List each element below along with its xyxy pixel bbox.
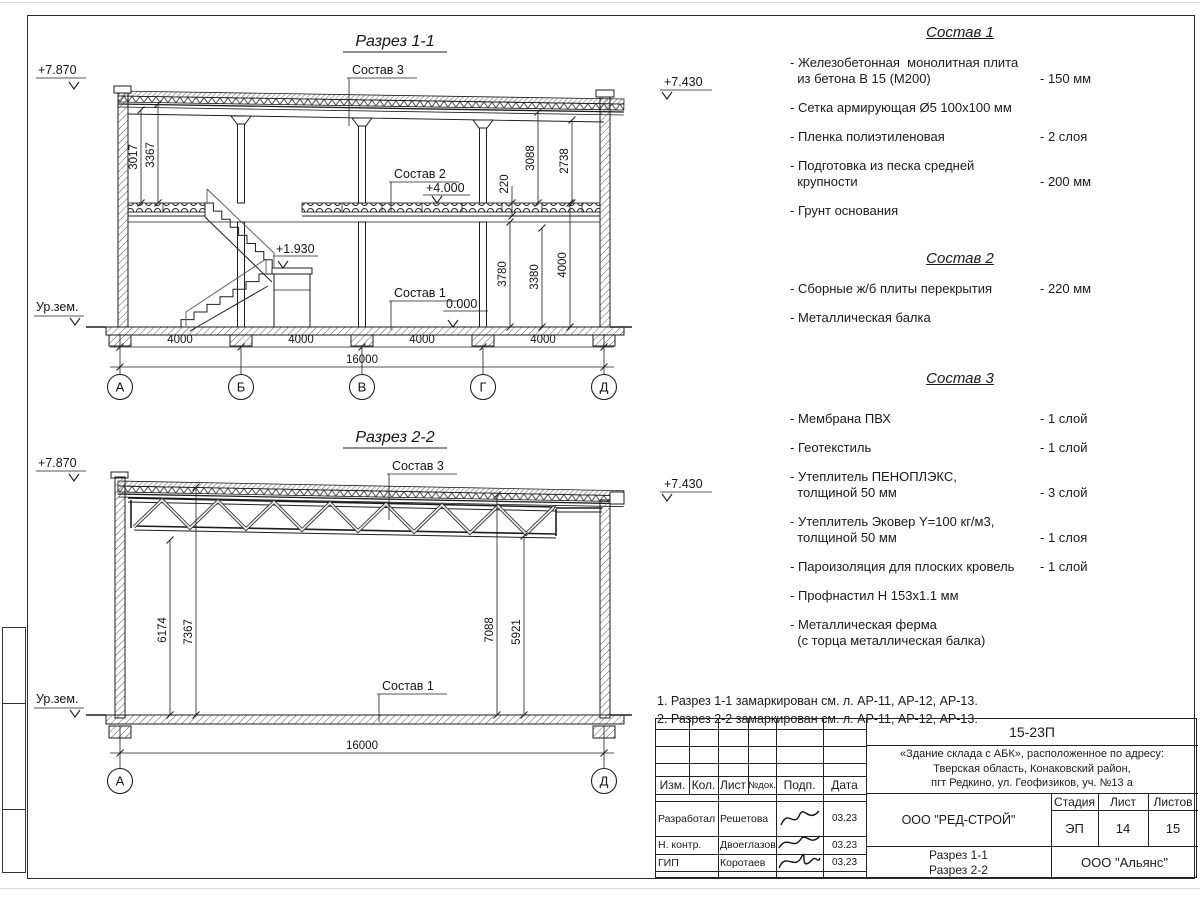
sheets-header: Листов	[1148, 793, 1198, 810]
dim-bay-4: 4000	[530, 334, 556, 346]
drawing-sheet: Разрез 1-1 +7.870 +7.430 Ур.зем. Состав …	[0, 0, 1200, 900]
level-landing: +1.930	[276, 242, 315, 256]
left-wall-2-2	[115, 477, 125, 718]
dim-bay-3: 4000	[409, 334, 435, 346]
dim-7367: 7367	[183, 619, 195, 645]
stage-header: Стадия	[1051, 793, 1098, 810]
role-ncontrol: Н. контр.	[658, 836, 718, 854]
date-gip: 03.23	[823, 854, 866, 871]
section-1-1-title: Разрез 1-1	[355, 33, 434, 50]
sheet-number: 14	[1098, 810, 1148, 846]
list-item: - Сетка армирующая Ø5 100х100 мм	[790, 100, 1190, 116]
list-item: - Утеплитель Эковер Y=100 кг/м3, толщино…	[790, 514, 1190, 546]
left-wall-1-1	[118, 93, 128, 327]
page-edge-bottom	[0, 888, 1200, 889]
dim-2738: 2738	[559, 148, 571, 174]
list-item: - Мембрана ПВХ - 1 слой	[790, 411, 1190, 427]
sheet-header: Лист	[1098, 793, 1148, 810]
axis-label-b: Б	[237, 380, 246, 395]
level-left-top: +7.870	[38, 63, 77, 77]
section-2-2-drawing: Разрез 2-2 +7.870 +7.430 Состав 3 Состав…	[28, 425, 718, 797]
composition-1-title: Состав 1	[790, 24, 1130, 41]
axis-label-v: В	[358, 380, 367, 395]
list-item: - Металлическая ферма (с торца металличе…	[790, 617, 1190, 649]
intermediate-slab	[128, 203, 600, 222]
leader-sostav2: Состав 2	[394, 167, 446, 181]
right-wall-2-2	[600, 500, 610, 718]
level-left-top-2: +7.870	[38, 456, 77, 470]
dim-220: 220	[499, 174, 511, 193]
dim-4000v: 4000	[557, 252, 569, 278]
stage-value: ЭП	[1051, 810, 1098, 846]
composition-2-title: Состав 2	[790, 250, 1130, 267]
page-edge-top	[0, 2, 1200, 3]
list-item: - Подготовка из песка средней крупности …	[790, 158, 1190, 190]
list-item: - Пароизоляция для плоских кровель - 1 с…	[790, 559, 1190, 575]
note-1: 1. Разрез 1-1 замаркирован см. л. АР-11,…	[657, 693, 978, 711]
sheets-total: 15	[1148, 810, 1198, 846]
right-wall-1-1	[600, 97, 610, 327]
roof-truss	[128, 498, 602, 538]
dim-5921: 5921	[511, 619, 523, 645]
project-object: «Здание склада с АБК», расположенное по …	[866, 745, 1198, 793]
list-item: - Грунт основания	[790, 203, 1190, 219]
axis-label-a: А	[116, 380, 125, 395]
dim-6174: 6174	[157, 617, 169, 643]
title-block: Изм. Кол. Лист №док. Подп. Дата Разработ…	[655, 718, 1197, 878]
dim-3380: 3380	[529, 264, 541, 290]
list-item: - Профнастил Н 153х1.1 мм	[790, 588, 1190, 604]
col-header-data: Дата	[823, 776, 866, 794]
col-header-list: Лист	[718, 776, 748, 794]
dim-total-1-1: 16000	[346, 354, 378, 366]
col-header-ndok: №док.	[748, 776, 776, 794]
company: ООО "Альянс"	[1051, 846, 1198, 879]
col-header-podp: Подп.	[776, 776, 823, 794]
level-plus4000: +4.000	[426, 181, 465, 195]
composition-3-title: Состав 3	[790, 370, 1130, 387]
role-developer: Разработал	[658, 801, 718, 836]
list-item: - Пленка полиэтиленовая - 2 слоя	[790, 129, 1190, 145]
level-right-top: +7.430	[664, 75, 703, 89]
name-developer: Решетова	[720, 801, 776, 836]
signature-gip	[775, 847, 822, 874]
list-item: - Железобетонная монолитная плита из бет…	[790, 55, 1190, 87]
signature-developer	[778, 805, 822, 833]
role-gip: ГИП	[658, 854, 718, 871]
composition-3: Состав 3 - Мембрана ПВХ - 1 слой - Геоте…	[790, 370, 1190, 649]
ground-slab-2-2	[86, 715, 632, 738]
project-code: 15-23П	[866, 719, 1198, 745]
section-2-2-title: Разрез 2-2	[355, 429, 434, 446]
axis-bubbles-2-2	[108, 769, 617, 794]
margin-stamp	[2, 627, 26, 873]
leader-sostav3-2: Состав 3	[392, 459, 444, 473]
dim-7088: 7088	[484, 617, 496, 643]
dim-total-2-2: 16000	[346, 740, 378, 752]
dim-bay-1: 4000	[167, 334, 193, 346]
date-developer: 03.23	[823, 801, 866, 836]
section-1-1-geometry	[34, 52, 712, 400]
section-1-1-drawing: Разрез 1-1 +7.870 +7.430 Ур.зем. Состав …	[28, 18, 718, 406]
list-item: - Утеплитель ПЕНОПЛЭКС, толщиной 50 мм -…	[790, 469, 1190, 501]
right-parapet-cap	[596, 90, 614, 97]
left-parapet-cap	[114, 86, 131, 93]
dim-3780: 3780	[497, 261, 509, 287]
axis-label-d: Д	[600, 380, 609, 395]
composition-1: Состав 1 - Железобетонная монолитная пли…	[790, 24, 1190, 219]
dim-3088: 3088	[525, 145, 537, 171]
axis-label-d-2: Д	[600, 774, 609, 789]
date-ncontrol: 03.23	[823, 836, 866, 854]
axis-label-a-2: А	[116, 774, 125, 789]
level-right-top-2: +7.430	[664, 477, 703, 491]
roof-1-1	[118, 91, 624, 115]
name-gip: Коротаев	[720, 854, 776, 871]
leader-sostav1-2: Состав 1	[382, 679, 434, 693]
name-ncontrol: Двоеглазов	[720, 836, 776, 854]
sheet-title: Разрез 1-1 Разрез 2-2	[866, 846, 1051, 879]
leader-sostav3: Состав 3	[352, 63, 404, 77]
col-header-izm: Изм.	[656, 776, 689, 794]
design-org: ООО "РЕД-СТРОЙ"	[866, 793, 1051, 846]
dim-3367: 3367	[145, 142, 157, 168]
dim-3017: 3017	[128, 144, 140, 170]
list-item: - Сборные ж/б плиты перекрытия - 220 мм	[790, 281, 1190, 297]
list-item: - Геотекстиль - 1 слой	[790, 440, 1190, 456]
composition-2: Состав 2 - Сборные ж/б плиты перекрытия …	[790, 250, 1190, 326]
axis-label-g: Г	[479, 380, 486, 395]
list-item: - Металлическая балка	[790, 310, 1190, 326]
ground-level-label-2: Ур.зем.	[36, 692, 78, 706]
ground-level-label: Ур.зем.	[36, 300, 78, 314]
col-header-kol: Кол.	[689, 776, 718, 794]
roof-end-block	[610, 492, 624, 504]
level-zero: 0.000	[446, 297, 477, 311]
dim-bay-2: 4000	[288, 334, 314, 346]
leader-sostav1: Состав 1	[394, 286, 446, 300]
